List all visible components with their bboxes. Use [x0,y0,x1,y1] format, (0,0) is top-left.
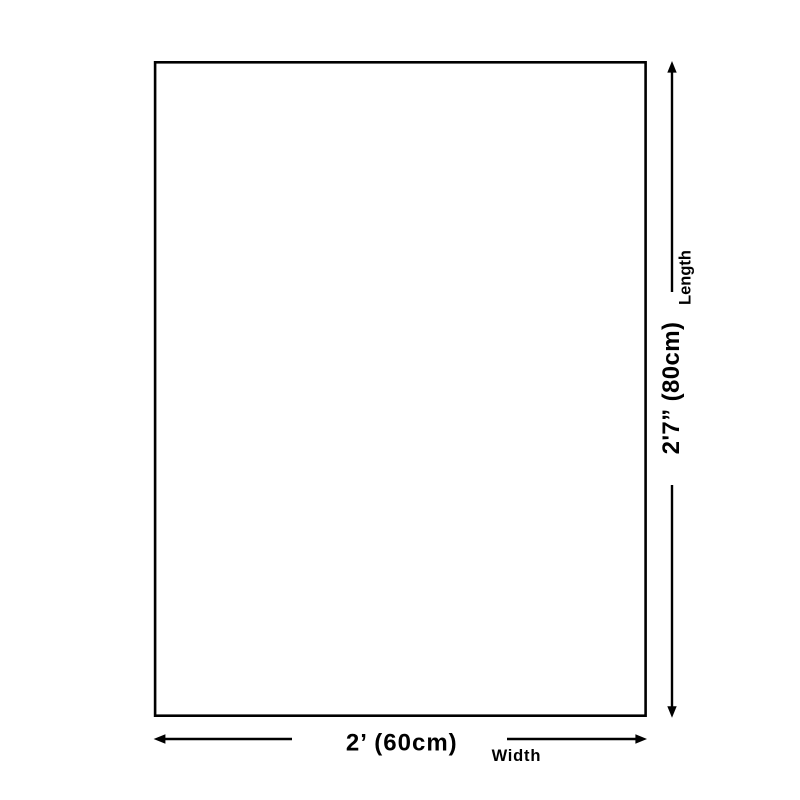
svg-text:Width: Width [492,747,542,765]
svg-text:Length: Length [677,250,695,305]
svg-text:2’ (60cm): 2’ (60cm) [346,730,458,757]
svg-text:2'7” (80cm): 2'7” (80cm) [658,322,685,455]
